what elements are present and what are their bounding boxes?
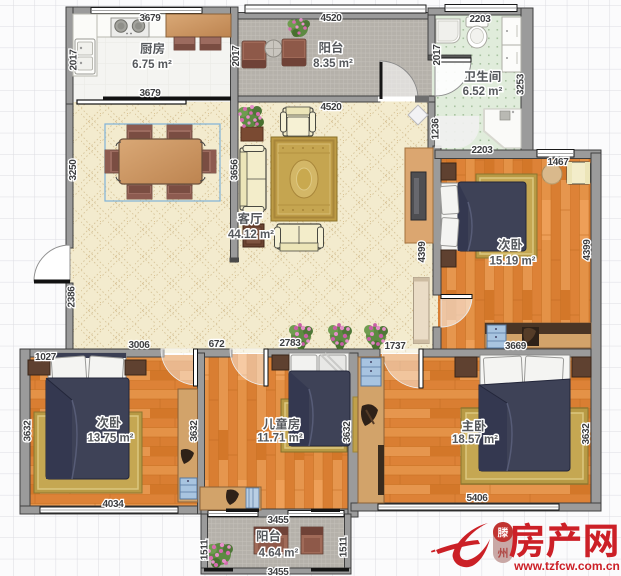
svg-text:44.12 m²: 44.12 m² [228,229,274,241]
svg-text:2386: 2386 [67,286,78,308]
svg-text:3679: 3679 [139,88,161,99]
svg-text:2017: 2017 [231,45,242,67]
svg-text:11.71 m²: 11.71 m² [257,433,303,445]
svg-text:4520: 4520 [320,13,342,24]
svg-text:672: 672 [209,339,226,350]
svg-text:3679: 3679 [139,13,161,24]
svg-text:3656: 3656 [230,159,241,181]
svg-text:1027: 1027 [35,352,57,363]
svg-text:4.64 m²: 4.64 m² [259,548,299,560]
svg-text:8.35 m²: 8.35 m² [313,58,353,70]
svg-text:1511: 1511 [200,539,211,560]
svg-text:4034: 4034 [102,499,124,510]
svg-text:3006: 3006 [128,340,150,351]
svg-text:5406: 5406 [466,493,488,504]
svg-text:4399: 4399 [417,241,428,263]
svg-text:3632: 3632 [23,420,34,442]
svg-text:2017: 2017 [432,44,443,66]
svg-text:4520: 4520 [320,102,342,113]
svg-text:2017: 2017 [69,49,80,71]
svg-text:18.57 m²: 18.57 m² [452,434,498,446]
svg-text:1511: 1511 [339,536,350,557]
svg-text:2203: 2203 [471,145,493,156]
svg-text:3253: 3253 [516,73,527,95]
svg-text:2203: 2203 [469,14,491,25]
svg-text:3632: 3632 [189,420,200,442]
svg-text:3455: 3455 [267,567,289,576]
svg-text:3250: 3250 [68,159,79,181]
svg-text:1467: 1467 [547,157,569,168]
svg-text:1236: 1236 [431,118,442,140]
svg-text:3669: 3669 [505,341,527,352]
svg-text:www.tzfcw.com.cn: www.tzfcw.com.cn [513,559,620,573]
svg-text:13.75 m²: 13.75 m² [87,433,133,445]
svg-text:6.75 m²: 6.75 m² [132,59,172,71]
svg-text:3632: 3632 [581,423,592,445]
svg-text:3455: 3455 [267,515,289,526]
svg-text:4399: 4399 [582,239,593,261]
svg-text:15.19 m²: 15.19 m² [489,256,535,268]
svg-text:6.52 m²: 6.52 m² [463,86,503,98]
svg-text:2783: 2783 [279,338,301,349]
svg-text:3632: 3632 [342,421,353,443]
svg-text:1737: 1737 [384,341,406,352]
